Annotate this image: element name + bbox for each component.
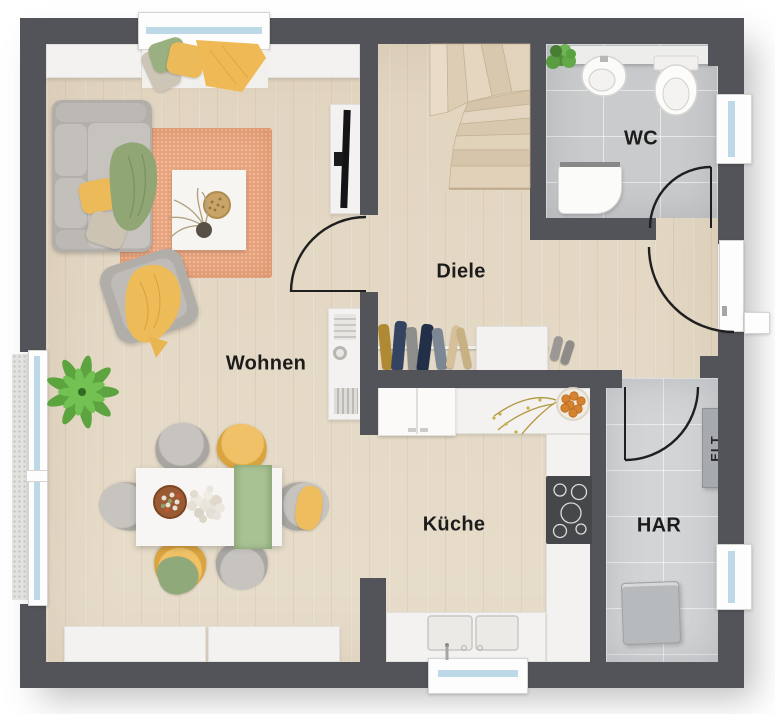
door-handle (722, 306, 727, 316)
table-runner (234, 465, 272, 549)
top-cabinet-right (266, 44, 360, 78)
sofa-seat-cushion (88, 123, 150, 186)
window-top-glass (146, 27, 262, 34)
window-har-glass (728, 551, 735, 603)
shelf-items (334, 314, 356, 340)
fridge-handle (420, 428, 428, 432)
shoe-cabinet (476, 326, 548, 376)
sofa-armrest-top (56, 103, 146, 122)
wall (360, 578, 386, 662)
window-left-mullion (26, 470, 48, 482)
sideboard (64, 626, 206, 662)
entrance-step (744, 312, 770, 334)
entrance-door (719, 240, 744, 332)
room-label-wohnen: Wohnen (226, 353, 306, 376)
shelf-books (334, 388, 358, 414)
kitchen-counter-right (546, 434, 592, 662)
room-label-diele: Diele (436, 261, 485, 284)
wall (360, 292, 378, 435)
wall (360, 44, 378, 215)
wall (20, 662, 744, 688)
wall (590, 370, 606, 662)
tv-stand (334, 152, 343, 166)
kitchen-counter-bottom (386, 612, 546, 662)
wall (530, 218, 656, 240)
room-label-kueche: Küche (423, 514, 486, 537)
room-label-har: HAR (637, 515, 681, 538)
wc-cabinet (558, 164, 622, 214)
top-cabinet-left (46, 44, 142, 78)
window-wc-glass (728, 101, 735, 157)
fridge-door-seam (416, 388, 418, 434)
floor-plan: ELT (0, 0, 775, 714)
wall (20, 18, 744, 44)
window-kitchen-glass (438, 670, 518, 677)
wall (718, 162, 744, 244)
fridge-handle (408, 428, 416, 432)
sofa-back-cushion (55, 124, 87, 176)
wall (360, 370, 622, 388)
wall-stub (708, 44, 726, 66)
shelf-jar (333, 346, 347, 360)
wall (20, 18, 46, 352)
wc-shelf (570, 46, 712, 64)
wc-cabinet-lid (560, 162, 620, 167)
wall (530, 44, 546, 240)
sideboard (208, 626, 340, 662)
wall (700, 356, 744, 378)
washer (621, 581, 681, 645)
wall (718, 606, 744, 688)
coffee-table (172, 170, 246, 250)
room-label-wc: WC (624, 128, 658, 151)
